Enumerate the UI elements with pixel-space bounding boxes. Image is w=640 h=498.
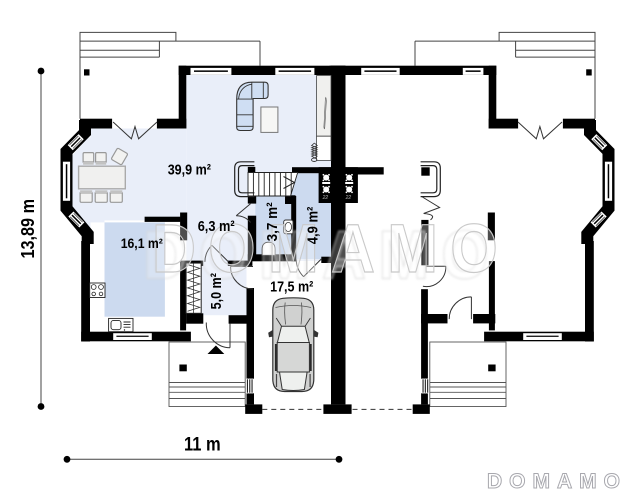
svg-text:17,5 m²: 17,5 m² [270,279,313,296]
svg-text:5,0 m²: 5,0 m² [208,273,225,309]
svg-text:13,89 m: 13,89 m [18,199,38,259]
svg-text:6,3 m²: 6,3 m² [198,218,235,235]
svg-text:22: 22 [322,195,329,201]
svg-text:DOMAMO: DOMAMO [487,470,627,493]
svg-text:16,1 m²: 16,1 m² [121,235,163,251]
svg-text:4,9 m²: 4,9 m² [305,207,322,245]
svg-text:22: 22 [345,195,352,201]
svg-text:39,9 m²: 39,9 m² [168,161,211,178]
svg-text:11 m: 11 m [184,434,221,455]
svg-text:3,7 m²: 3,7 m² [264,202,281,241]
